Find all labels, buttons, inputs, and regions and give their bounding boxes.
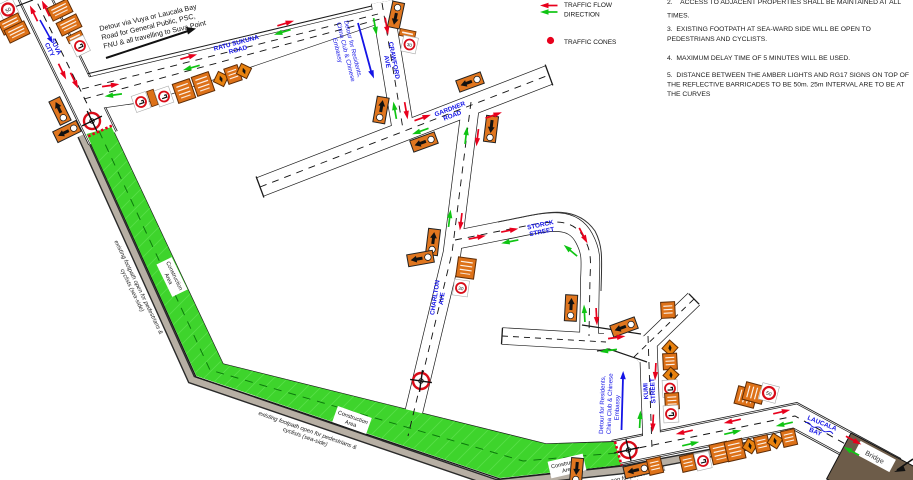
svg-text:STREET: STREET bbox=[649, 378, 657, 404]
svg-text:TRAFFIC CONES: TRAFFIC CONES bbox=[564, 39, 617, 46]
svg-text:3. EXISTING FOOTPATH AT SEA-W: 3. EXISTING FOOTPATH AT SEA-WARD SIDE WI… bbox=[667, 26, 871, 33]
svg-text:DIRECTION: DIRECTION bbox=[564, 12, 600, 19]
svg-text:4. MAXIMUM DELAY TIME OF 5 MI: 4. MAXIMUM DELAY TIME OF 5 MINUTES WILL … bbox=[667, 55, 850, 62]
svg-text:5. DISTANCE BETWEEN THE AMBER: 5. DISTANCE BETWEEN THE AMBER LIGHTS AND… bbox=[667, 72, 909, 79]
svg-text:Embassy: Embassy bbox=[614, 394, 622, 421]
svg-text:THE REFLECTIVE BARRICADES TO B: THE REFLECTIVE BARRICADES TO BE 50m. 25m… bbox=[667, 82, 904, 89]
svg-text:PEDESTRIANS AND CYCLISTS.: PEDESTRIANS AND CYCLISTS. bbox=[667, 36, 767, 43]
svg-text:THE CURVES: THE CURVES bbox=[667, 91, 711, 98]
svg-text:TIMES.: TIMES. bbox=[667, 13, 690, 20]
svg-text:TRAFFIC FLOW: TRAFFIC FLOW bbox=[564, 2, 613, 9]
svg-text:2. ACCESS TO ADJACENT PROPE: 2. ACCESS TO ADJACENT PROPERTIES SHALL B… bbox=[667, 0, 901, 6]
